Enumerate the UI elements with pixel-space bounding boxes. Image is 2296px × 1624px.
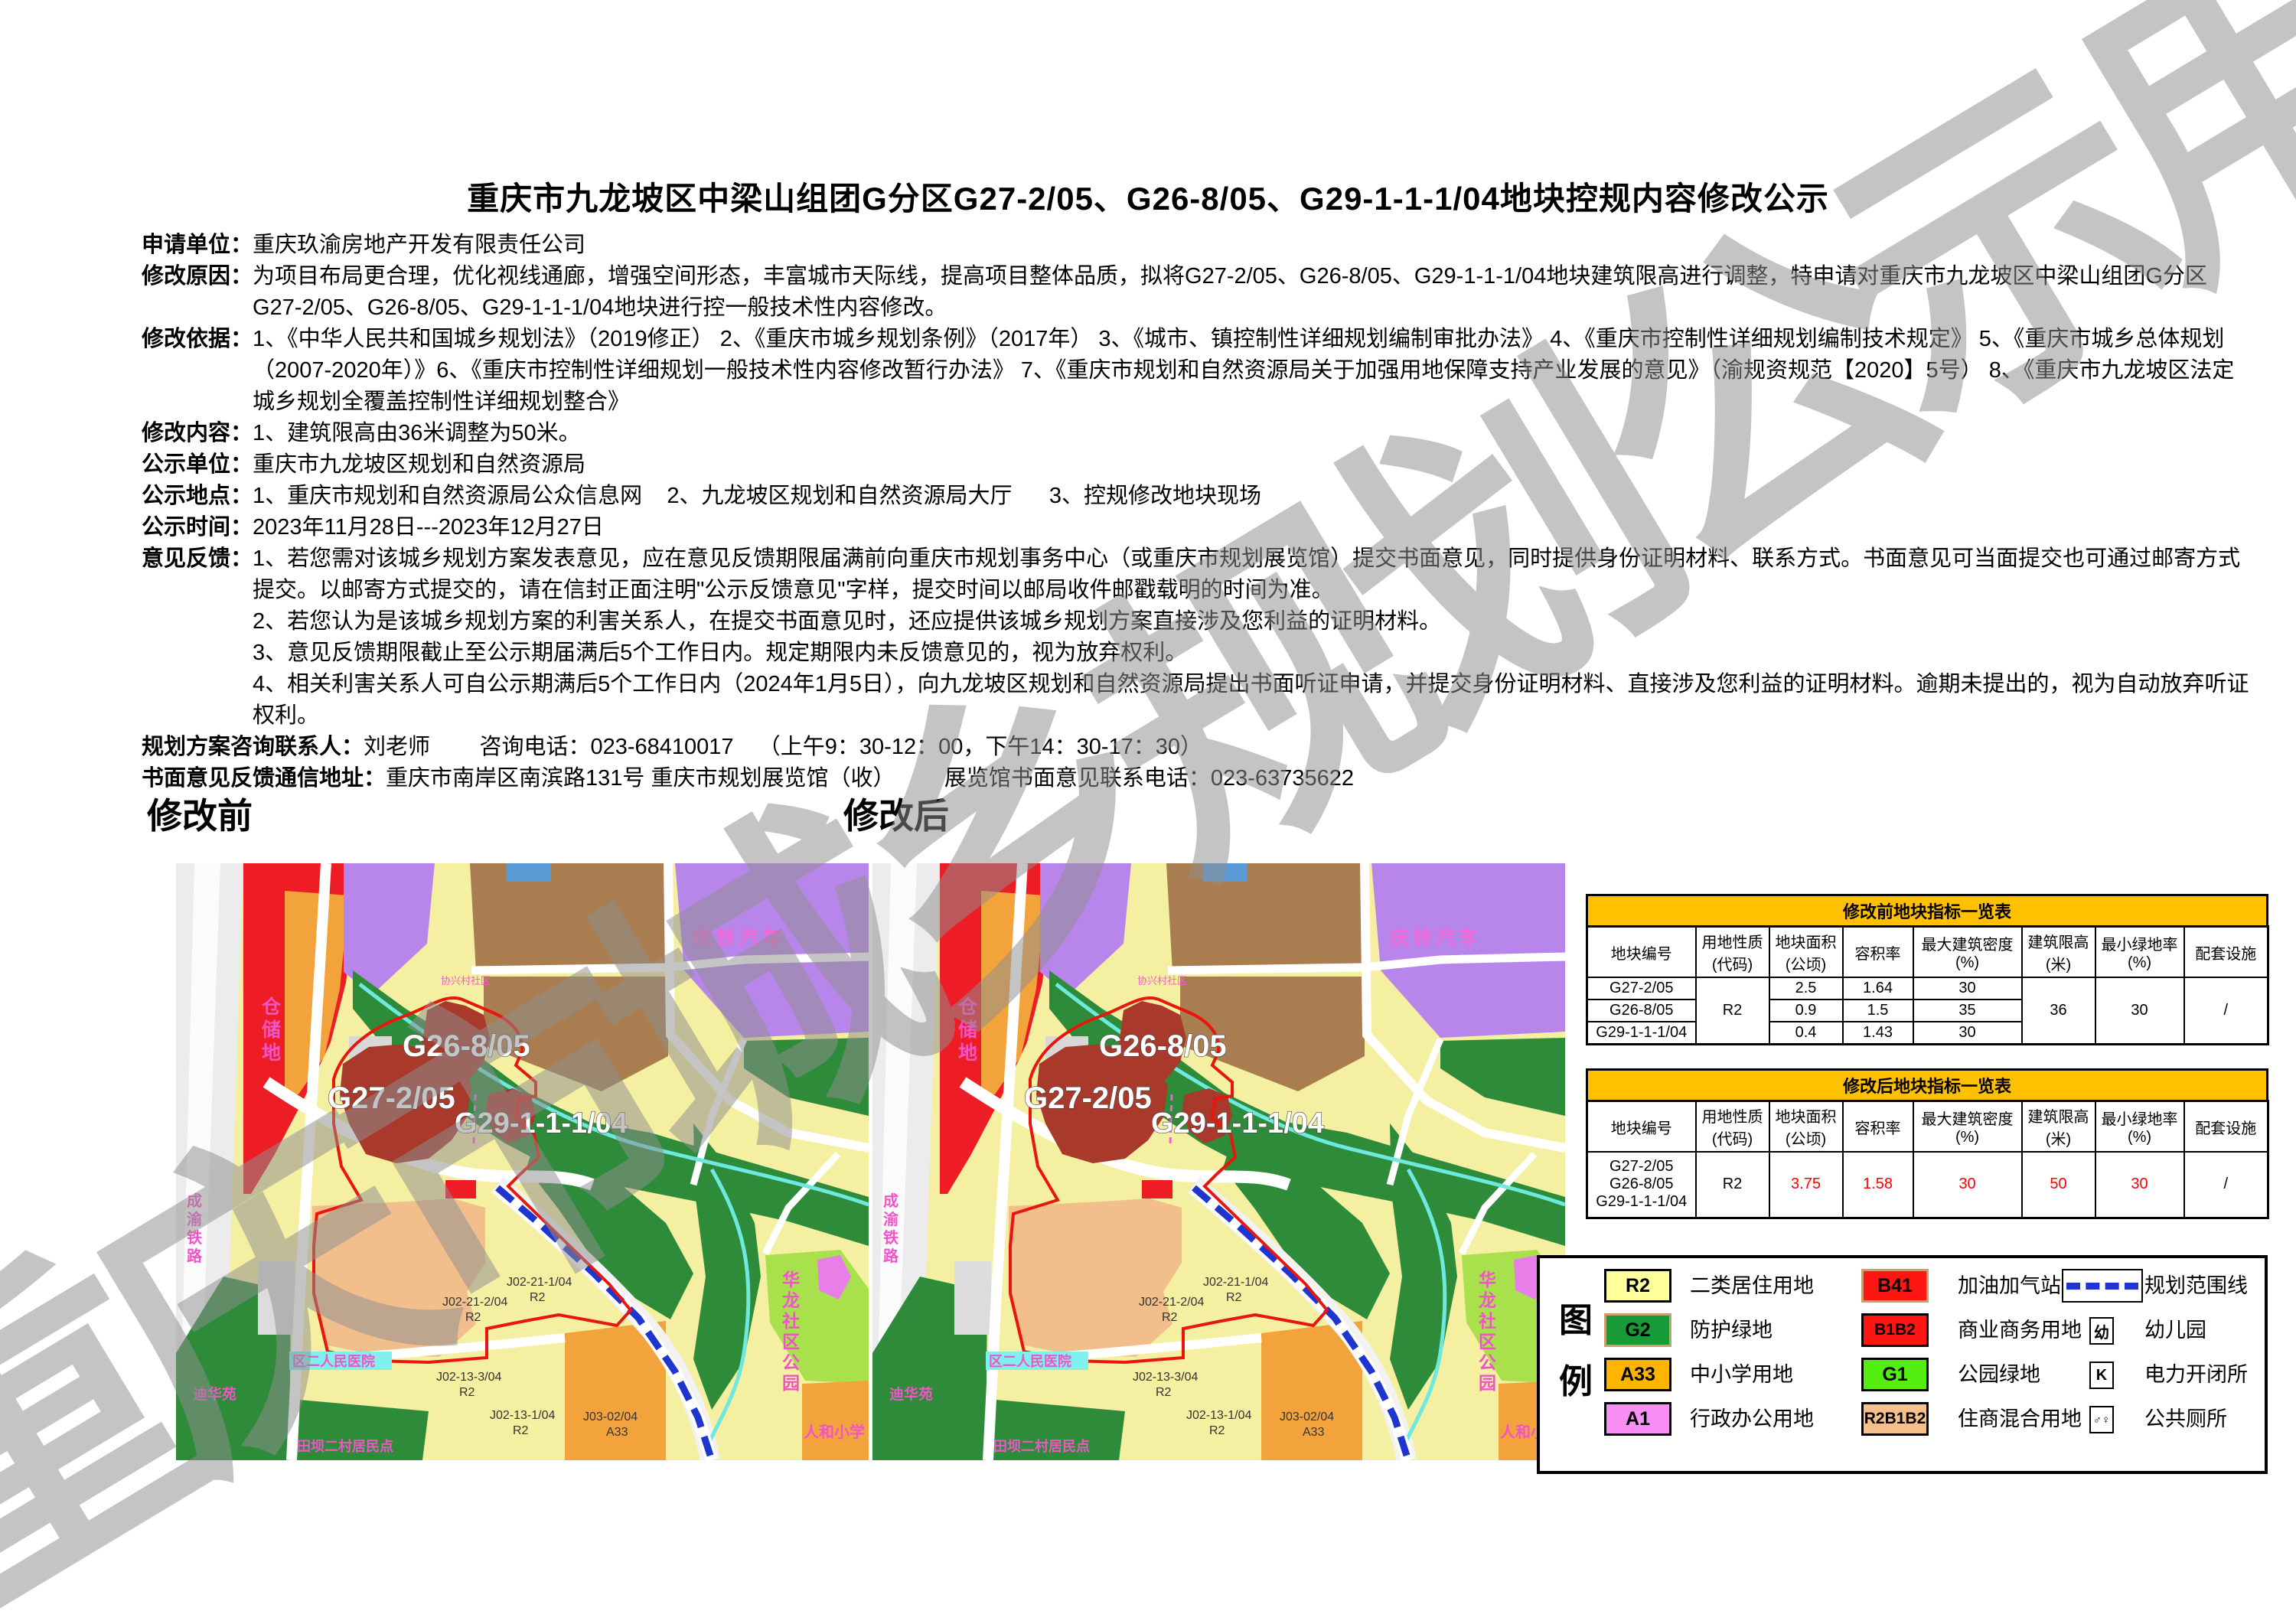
legend-swatch-g2: G2 xyxy=(1604,1313,1671,1347)
notice-info-block: 申请单位：重庆玖渝房地产开发有限责任公司修改原因：为项目布局更合理，优化视线通廊… xyxy=(142,230,2254,794)
info-row-3: 修改内容：1、建筑限高由36米调整为50米。 xyxy=(142,418,2254,449)
density-cell: 35 xyxy=(1913,1000,2022,1022)
column-header: 最大建筑密度 (%) xyxy=(1913,927,2022,978)
field-label: 规划方案咨询联系人： xyxy=(142,732,364,763)
parcel-mixed-use xyxy=(1009,1198,1182,1357)
parcel-label-g29: G29-1-1-1/04 xyxy=(1151,1107,1324,1140)
table-after-wrapper: 修改后地块指标一览表 地块编号用地性质 (代码)地块面积 (公顷)容积率最大建筑… xyxy=(1586,1068,2268,1219)
field-value: 1、重庆市规划和自然资源局公众信息网 2、九龙坡区规划和自然资源局大厅 3、控规… xyxy=(253,481,2254,512)
column-header: 最大建筑密度 (%) xyxy=(1913,1101,2022,1153)
column-header: 配套设施 xyxy=(2184,927,2268,978)
facility-cell: / xyxy=(2184,1152,2268,1218)
field-value: 1、《中华人民共和国城乡规划法》（2019修正） 2、《重庆市城乡规划条例》（2… xyxy=(253,324,2254,418)
legend-label: 规划范围线 xyxy=(2144,1269,2248,1303)
label-qingling: 庆铃汽车 xyxy=(1390,927,1482,949)
parcel-code-label: J02-21-2/04 xyxy=(1139,1296,1204,1309)
legend-swatch-b1b2: B1B2 xyxy=(1861,1313,1929,1347)
parcel-zone-label: R2 xyxy=(1162,1311,1178,1324)
feedback-item-2: 2、若您认为是该城乡规划方案的利害关系人，在提交书面意见时，还应提供该城乡规划方… xyxy=(253,606,2254,638)
column-header: 容积率 xyxy=(1843,1101,1913,1153)
parcel-mixed-use xyxy=(312,1198,485,1357)
legend-label: 防护绿地 xyxy=(1690,1313,1773,1347)
legend-label: 电力开闭所 xyxy=(2144,1358,2248,1391)
parcel-zone-label: R2 xyxy=(1226,1291,1242,1304)
field-value: 重庆市南岸区南滨路131号 重庆市规划展览馆（收） 展览馆书面意见联系电话：02… xyxy=(386,763,2254,794)
parcel-zone-label: R2 xyxy=(459,1386,475,1399)
field-label: 申请单位： xyxy=(142,230,253,261)
field-label: 修改依据： xyxy=(142,324,253,355)
field-label: 公示时间： xyxy=(142,512,253,543)
legend-label: 商业商务用地 xyxy=(1958,1313,2082,1347)
label-dihuayuan: 迪华苑 xyxy=(193,1385,236,1403)
feedback-items: 1、若您需对该城乡规划方案发表意见，应在意见反馈期限届满前向重庆市规划事务中心（… xyxy=(253,543,2254,732)
usage-cell: R2 xyxy=(1696,977,1769,1045)
parcel-code-label: J02-21-2/04 xyxy=(442,1296,507,1309)
contact-row-0: 规划方案咨询联系人：刘老师 咨询电话：023-68410017 （上午9：30-… xyxy=(142,732,2254,763)
info-row-2: 修改依据：1、《中华人民共和国城乡规划法》（2019修正） 2、《重庆市城乡规划… xyxy=(142,324,2254,418)
label-hualong-park: 华龙社区公园 xyxy=(1479,1270,1496,1393)
green-cell: 30 xyxy=(2095,977,2184,1045)
table-header-row: 地块编号用地性质 (代码)地块面积 (公顷)容积率最大建筑密度 (%)建筑限高 … xyxy=(1587,927,2268,978)
column-header: 用地性质 (代码) xyxy=(1696,1101,1769,1153)
legend-symbol-icon: ♂♀ xyxy=(2089,1406,2114,1433)
column-header: 配套设施 xyxy=(2184,1101,2268,1153)
column-header: 地块编号 xyxy=(1587,1101,1696,1153)
parcel-zone-label: R2 xyxy=(1209,1424,1225,1437)
far-cell: 1.5 xyxy=(1843,1000,1913,1022)
field-label: 公示单位： xyxy=(142,449,253,481)
label-dihuayuan: 迪华苑 xyxy=(889,1385,933,1403)
contact-row-1: 书面意见反馈通信地址：重庆市南岸区南滨路131号 重庆市规划展览馆（收） 展览馆… xyxy=(142,763,2254,794)
feedback-row: 意见反馈：1、若您需对该城乡规划方案发表意见，应在意见反馈期限届满前向重庆市规划… xyxy=(142,543,2254,732)
label-tianba: 田坝二村居民点 xyxy=(993,1438,1090,1454)
parcel-zone-label: A33 xyxy=(1303,1426,1325,1439)
legend-label: 公园绿地 xyxy=(1958,1358,2040,1391)
label-cangchudi: 仓储地 xyxy=(261,996,282,1064)
density-cell: 30 xyxy=(1913,1152,2022,1218)
legend-swatch-r2: R2 xyxy=(1604,1269,1671,1303)
parcel-label-g26: G26-8/05 xyxy=(1099,1029,1227,1063)
feedback-item-3: 3、意见反馈期限截止至公示期届满后5个工作日内。规定期限内未反馈意见的，视为放弃… xyxy=(253,638,2254,669)
label-hospital: 区二人民医院 xyxy=(989,1353,1071,1369)
parcel-zone-label: R2 xyxy=(1156,1386,1172,1399)
field-label: 意见反馈： xyxy=(142,543,253,575)
parcel-label-g26: G26-8/05 xyxy=(403,1029,530,1063)
info-row-4: 公示单位：重庆市九龙坡区规划和自然资源局 xyxy=(142,449,2254,481)
far-cell: 1.64 xyxy=(1843,977,1913,1000)
plot-code-cell: G27-2/05 xyxy=(1587,977,1696,1000)
area-cell: 0.9 xyxy=(1769,1000,1843,1022)
legend-swatch-a33: A33 xyxy=(1604,1358,1671,1391)
parcel-zone-label: R2 xyxy=(465,1311,481,1324)
area-cell: 3.75 xyxy=(1769,1152,1843,1218)
table-before-wrapper: 修改前地块指标一览表 地块编号用地性质 (代码)地块面积 (公顷)容积率最大建筑… xyxy=(1586,894,2268,1045)
label-xiexing: 协兴村社区 xyxy=(1137,975,1187,986)
parcel-code-label: J02-13-1/04 xyxy=(1186,1409,1251,1422)
plot-code-cell: G26-8/05 xyxy=(1587,1000,1696,1022)
plot-code-cell: G29-1-1-1/04 xyxy=(1587,1022,1696,1045)
column-header: 地块编号 xyxy=(1587,927,1696,978)
column-header: 最小绿地率 (%) xyxy=(2095,1101,2184,1153)
table-row: G27-2/05 G26-8/05 G29-1-1-1/04R23.751.58… xyxy=(1587,1152,2268,1218)
column-header: 建筑限高 (米) xyxy=(2022,1101,2095,1153)
legend-boundary-line-icon xyxy=(2062,1269,2143,1303)
map-before-heading: 修改前 xyxy=(147,788,253,839)
field-value: 重庆玖渝房地产开发有限责任公司 xyxy=(253,230,2254,261)
label-qingling: 庆铃汽车 xyxy=(693,927,785,949)
label-cangchudi: 仓储地 xyxy=(957,996,978,1064)
map-after: G26-8/05 G27-2/05 G29-1-1-1/04 庆铃汽车 仓储地 … xyxy=(872,863,1565,1460)
legend-label: 行政办公用地 xyxy=(1690,1402,1814,1436)
field-value: 刘老师 咨询电话：023-68410017 （上午9：30-12：00，下午14… xyxy=(364,732,2254,763)
parcel-code-label: J03-02/04 xyxy=(583,1410,638,1423)
height-cell: 36 xyxy=(2022,977,2095,1045)
legend-swatch-b41: B41 xyxy=(1861,1269,1929,1303)
legend-symbol-icon: K xyxy=(2089,1361,2114,1389)
plot-code-cell: G27-2/05 G26-8/05 G29-1-1-1/04 xyxy=(1587,1152,1696,1218)
info-row-5: 公示地点：1、重庆市规划和自然资源局公众信息网 2、九龙坡区规划和自然资源局大厅… xyxy=(142,481,2254,512)
page-title: 重庆市九龙坡区中梁山组团G分区G27-2/05、G26-8/05、G29-1-1… xyxy=(0,173,2296,220)
column-header: 容积率 xyxy=(1843,927,1913,978)
label-xiexing: 协兴村社区 xyxy=(441,975,491,986)
area-cell: 2.5 xyxy=(1769,977,1843,1000)
usage-cell: R2 xyxy=(1696,1152,1769,1218)
table-before: 地块编号用地性质 (代码)地块面积 (公顷)容积率最大建筑密度 (%)建筑限高 … xyxy=(1586,925,2269,1045)
legend-label: 中小学用地 xyxy=(1690,1358,1793,1391)
parcel-label-g27: G27-2/05 xyxy=(328,1081,455,1115)
info-row-6: 公示时间：2023年11月28日---2023年12月27日 xyxy=(142,512,2254,543)
feedback-item-1: 1、若您需对该城乡规划方案发表意见，应在意见反馈期限届满前向重庆市规划事务中心（… xyxy=(253,543,2254,606)
legend-swatch-a1: A1 xyxy=(1604,1402,1671,1436)
table-after: 地块编号用地性质 (代码)地块面积 (公顷)容积率最大建筑密度 (%)建筑限高 … xyxy=(1586,1100,2269,1219)
table-after-title: 修改后地块指标一览表 xyxy=(1586,1068,2268,1100)
label-tianba: 田坝二村居民点 xyxy=(297,1438,393,1454)
field-value: 1、建筑限高由36米调整为50米。 xyxy=(253,418,2254,449)
height-cell: 50 xyxy=(2022,1152,2095,1218)
map-before: G26-8/05 G27-2/05 G29-1-1-1/04 庆铃汽车 仓储地 … xyxy=(176,863,869,1460)
field-label: 公示地点： xyxy=(142,481,253,512)
legend-label: 住商混合用地 xyxy=(1958,1402,2082,1436)
table-header-row: 地块编号用地性质 (代码)地块面积 (公顷)容积率最大建筑密度 (%)建筑限高 … xyxy=(1587,1101,2268,1153)
parcel-code-label: J02-21-1/04 xyxy=(507,1276,572,1289)
map-after-heading: 修改后 xyxy=(843,788,949,839)
label-renhe-school: 人和小学 xyxy=(804,1423,865,1441)
green-cell: 30 xyxy=(2095,1152,2184,1218)
legend-box: 图 例 R2二类居住用地G2防护绿地A33中小学用地A1行政办公用地B41加油加… xyxy=(1537,1255,2268,1474)
legend-swatch-g1: G1 xyxy=(1861,1358,1929,1391)
parcel-code-label: J02-21-1/04 xyxy=(1203,1276,1268,1289)
parcel-code-label: J02-13-1/04 xyxy=(490,1409,555,1422)
parcel-code-label: J02-13-3/04 xyxy=(1133,1371,1198,1384)
field-label: 修改原因： xyxy=(142,261,253,292)
parcel-zone-label: R2 xyxy=(513,1424,529,1437)
info-row-0: 申请单位：重庆玖渝房地产开发有限责任公司 xyxy=(142,230,2254,261)
density-cell: 30 xyxy=(1913,977,2022,1000)
field-label: 修改内容： xyxy=(142,418,253,449)
legend-symbol-icon: 幼 xyxy=(2089,1317,2114,1345)
field-value: 2023年11月28日---2023年12月27日 xyxy=(253,512,2254,543)
parcel-code-label: J03-02/04 xyxy=(1280,1410,1334,1423)
info-row-1: 修改原因：为项目布局更合理，优化视线通廊，增强空间形态，丰富城市天际线，提高项目… xyxy=(142,261,2254,324)
parcel-zone-label: R2 xyxy=(530,1291,546,1304)
far-cell: 1.58 xyxy=(1843,1152,1913,1218)
planning-notice-page: 重庆市九龙坡区中梁山组团G分区G27-2/05、G26-8/05、G29-1-1… xyxy=(0,0,2296,1624)
column-header: 用地性质 (代码) xyxy=(1696,927,1769,978)
column-header: 地块面积 (公顷) xyxy=(1769,927,1843,978)
legend-label: 二类居住用地 xyxy=(1690,1269,1814,1303)
field-value: 重庆市九龙坡区规划和自然资源局 xyxy=(253,449,2254,481)
facility-cell: / xyxy=(2184,977,2268,1045)
legend-label: 幼儿园 xyxy=(2144,1313,2206,1347)
column-header: 建筑限高 (米) xyxy=(2022,927,2095,978)
table-before-title: 修改前地块指标一览表 xyxy=(1586,894,2268,925)
column-header: 最小绿地率 (%) xyxy=(2095,927,2184,978)
parcel-code-label: J02-13-3/04 xyxy=(436,1371,501,1384)
parcel-zone-label: A33 xyxy=(606,1426,628,1439)
legend-title: 图 例 xyxy=(1557,1290,1595,1413)
parcel-label-g27: G27-2/05 xyxy=(1024,1081,1152,1115)
legend-label: 公共厕所 xyxy=(2144,1402,2227,1436)
far-cell: 1.43 xyxy=(1843,1022,1913,1045)
label-hospital: 区二人民医院 xyxy=(292,1353,375,1369)
feedback-item-4: 4、相关利害关系人可自公示期满后5个工作日内（2024年1月5日），向九龙坡区规… xyxy=(253,669,2254,732)
column-header: 地块面积 (公顷) xyxy=(1769,1101,1843,1153)
parcel-label-g29: G29-1-1-1/04 xyxy=(455,1107,628,1140)
field-value: 为项目布局更合理，优化视线通廊，增强空间形态，丰富城市天际线，提高项目整体品质，… xyxy=(253,261,2254,324)
label-hualong-park: 华龙社区公园 xyxy=(782,1270,800,1393)
density-cell: 30 xyxy=(1913,1022,2022,1045)
legend-swatch-r2b1b2: R2B1B2 xyxy=(1861,1402,1929,1436)
area-cell: 0.4 xyxy=(1769,1022,1843,1045)
table-row: G27-2/05R22.51.64303630/ xyxy=(1587,977,2268,1000)
